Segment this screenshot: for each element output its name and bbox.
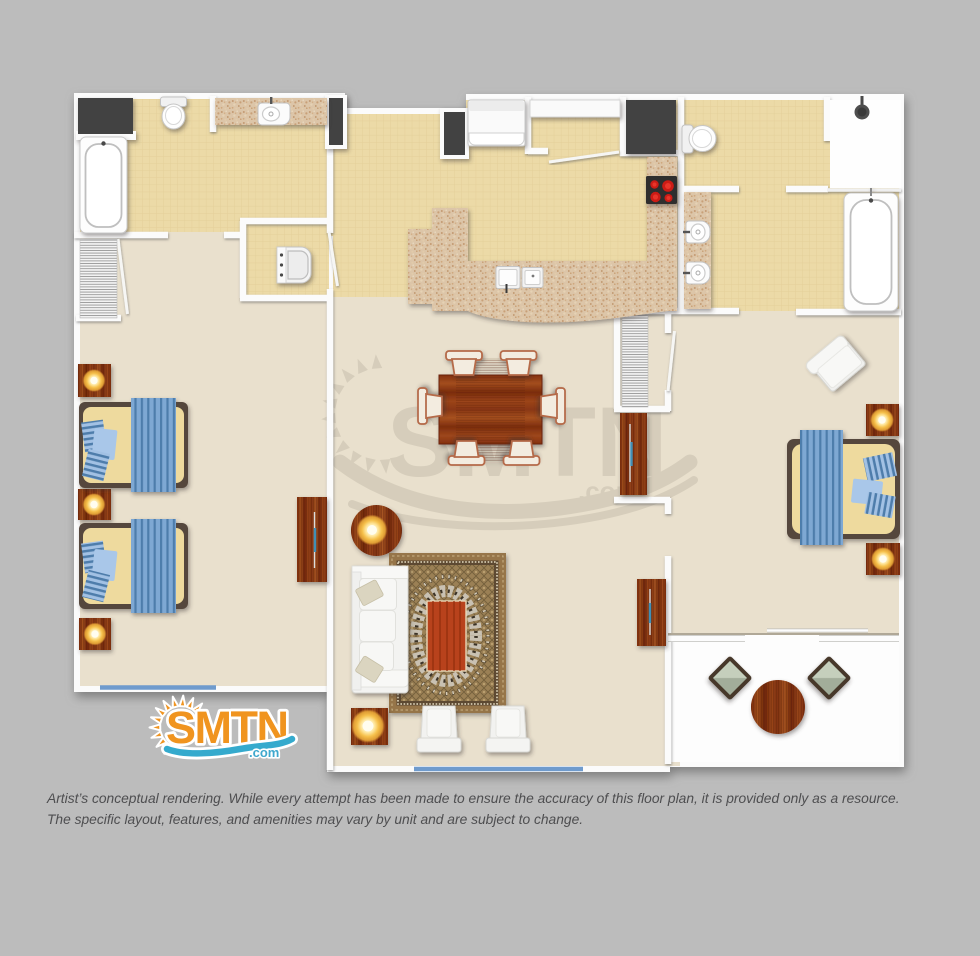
- svg-text:The specific layout, features,: The specific layout, features, and ameni…: [47, 812, 583, 827]
- svg-text:Artist’s conceptual rendering.: Artist’s conceptual rendering. While eve…: [46, 791, 900, 806]
- svg-text:.com: .com: [249, 745, 279, 760]
